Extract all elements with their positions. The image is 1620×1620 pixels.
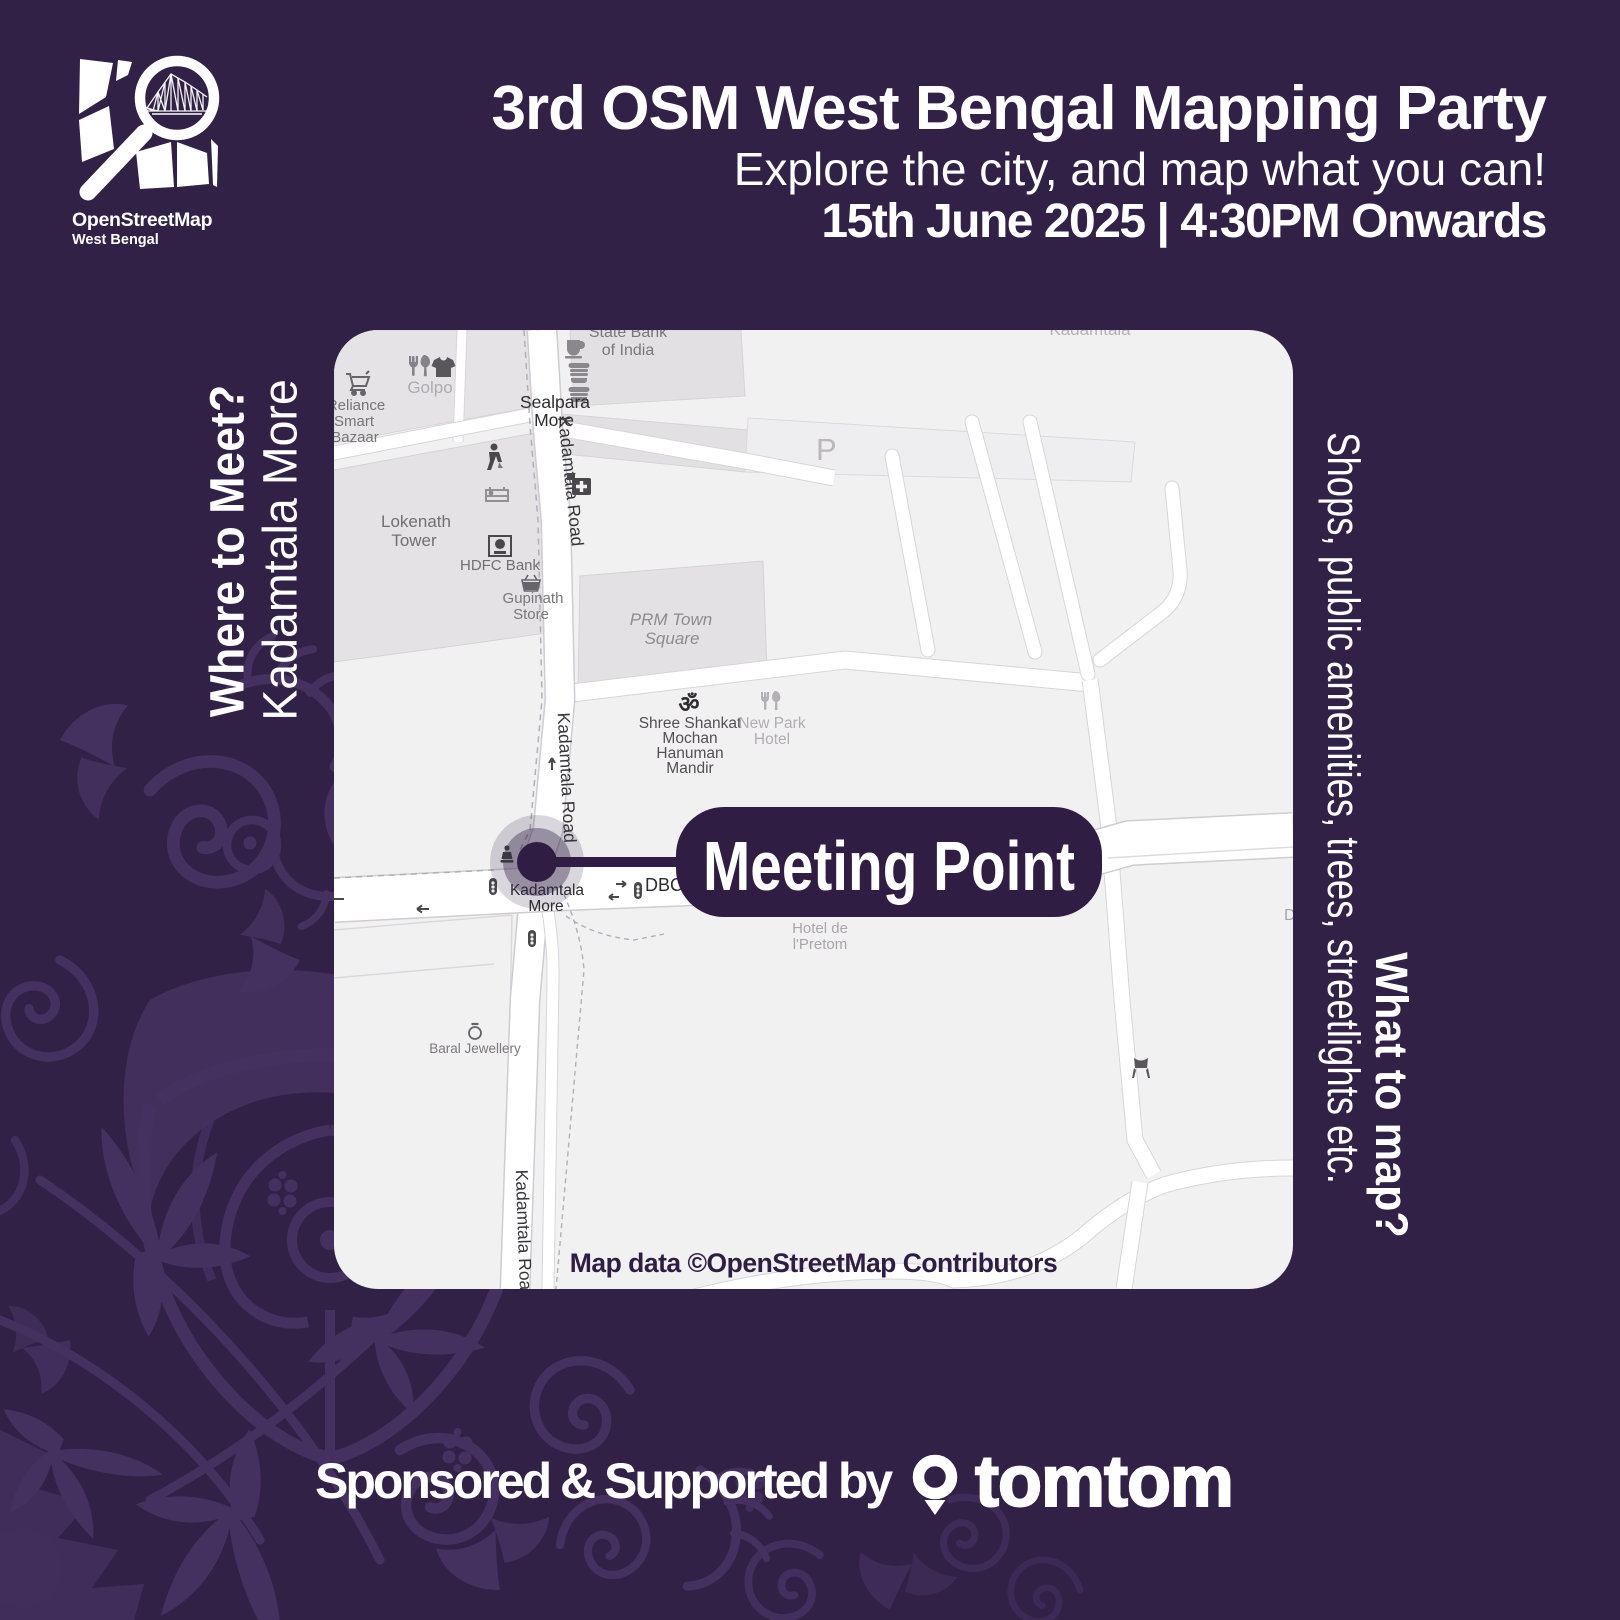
svg-text:PRM Town: PRM Town xyxy=(630,610,713,629)
svg-text:Mandir: Mandir xyxy=(666,760,713,777)
svg-text:Tower: Tower xyxy=(391,531,437,550)
svg-text:Kadamtala: Kadamtala xyxy=(1049,330,1131,339)
svg-text:Golpo: Golpo xyxy=(407,378,452,397)
svg-text:Gupinath: Gupinath xyxy=(503,590,564,607)
svg-text:ॐ: ॐ xyxy=(679,691,700,717)
svg-text:Square: Square xyxy=(645,629,700,648)
svg-text:Hotel: Hotel xyxy=(754,731,790,748)
svg-text:tomtom: tomtom xyxy=(975,1445,1233,1522)
svg-text:Baral Jewellery: Baral Jewellery xyxy=(429,1041,521,1056)
svg-text:D: D xyxy=(1284,907,1293,924)
svg-text:Sealpara: Sealpara xyxy=(520,392,590,412)
svg-text:West Bengal: West Bengal xyxy=(72,232,159,248)
svg-text:of India: of India xyxy=(602,342,655,359)
svg-text:Lokenath: Lokenath xyxy=(381,512,451,531)
svg-text:P: P xyxy=(816,432,837,467)
svg-text:Bazaar: Bazaar xyxy=(334,429,379,446)
svg-text:Smart: Smart xyxy=(334,413,375,430)
svg-text:Reliance: Reliance xyxy=(334,397,385,414)
svg-text:New Park: New Park xyxy=(738,715,805,732)
svg-text:Store: Store xyxy=(513,606,549,623)
svg-text:Hotel de: Hotel de xyxy=(792,920,848,937)
svg-text:HDFC Bank: HDFC Bank xyxy=(460,557,541,574)
svg-text:l'Pretom: l'Pretom xyxy=(793,936,848,953)
svg-text:State Bank: State Bank xyxy=(589,330,668,341)
svg-text:OpenStreetMap: OpenStreetMap xyxy=(72,209,213,231)
svg-text:Meeting Point: Meeting Point xyxy=(703,827,1075,905)
